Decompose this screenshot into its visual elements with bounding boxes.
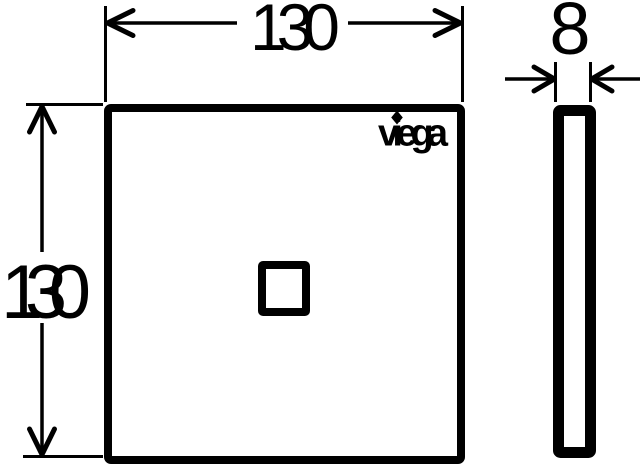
left-height-dimension: 130: [1, 105, 103, 457]
thickness-value: 8: [549, 0, 590, 70]
top-width-dimension: 130: [106, 0, 463, 102]
top-width-value: 130: [250, 0, 340, 64]
technical-drawing: viega 130 130: [0, 0, 640, 464]
brand-logo: viega: [378, 113, 449, 155]
drawing-canvas: viega 130 130: [0, 0, 640, 464]
front-view: viega: [108, 108, 461, 460]
center-square-cutout: [262, 265, 306, 312]
thickness-dimension: 8: [505, 0, 640, 102]
side-view: [559, 111, 591, 453]
side-view-plate: [559, 111, 591, 453]
left-height-value: 130: [1, 250, 91, 335]
